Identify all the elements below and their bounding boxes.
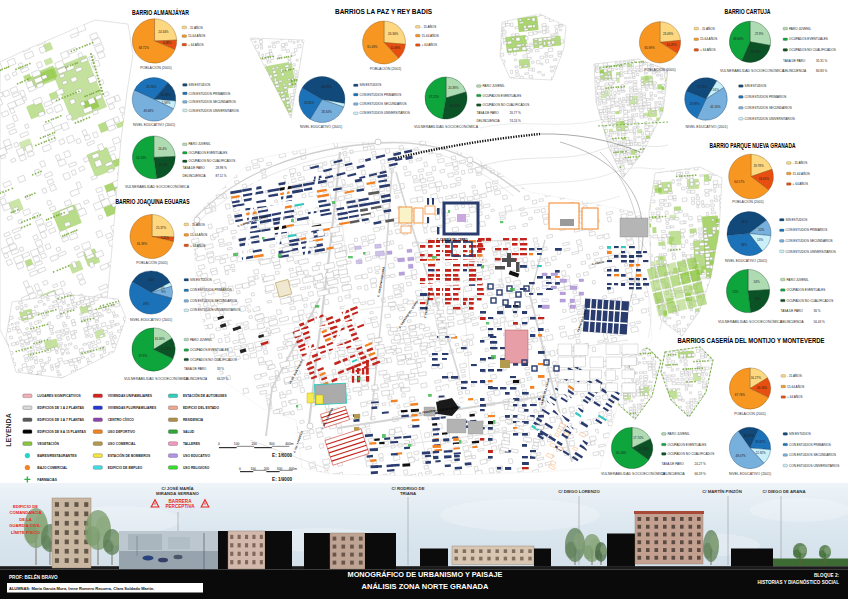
svg-text:CON ESTUDIOS SECUNDARIOS: CON ESTUDIOS SECUNDARIOS — [745, 106, 792, 110]
svg-text:16.67%: 16.67% — [744, 434, 755, 438]
svg-text:66.59 %: 66.59 % — [695, 472, 707, 476]
svg-text:20.39%: 20.39% — [448, 86, 459, 90]
svg-text:PARO JUVENIL: PARO JUVENIL — [789, 27, 811, 31]
svg-text:34%: 34% — [741, 243, 747, 247]
svg-text:- 15 AÑOS: - 15 AÑOS — [793, 160, 808, 165]
svg-text:68.72%: 68.72% — [139, 46, 150, 50]
svg-text:0: 0 — [239, 467, 241, 471]
svg-text:CON ESTUDIOS UNIVERSITARIOS: CON ESTUDIOS UNIVERSITARIOS — [789, 464, 839, 468]
svg-text:SIN ESTUDIOS: SIN ESTUDIOS — [745, 84, 767, 88]
svg-text:TASA DE PARO: TASA DE PARO — [184, 367, 207, 371]
svg-text:CON ESTUDIOS PRIMARIOS: CON ESTUDIOS PRIMARIOS — [360, 93, 402, 97]
svg-text:13.45%: 13.45% — [759, 177, 770, 181]
svg-text:15-64 AÑOS: 15-64 AÑOS — [793, 171, 810, 176]
svg-text:35.31 %: 35.31 % — [816, 59, 828, 63]
svg-text:TASA DE PARO: TASA DE PARO — [477, 111, 500, 115]
svg-text:FARMACIAS: FARMACIAS — [37, 478, 57, 482]
svg-text:11.69%: 11.69% — [390, 46, 400, 50]
svg-text:NIVEL EDUCATIVO (2001): NIVEL EDUCATIVO (2001) — [729, 472, 771, 476]
svg-text:USO DEPORTIVO: USO DEPORTIVO — [108, 430, 136, 434]
svg-text:TASA DE PARO: TASA DE PARO — [783, 59, 806, 63]
svg-text:26.36%: 26.36% — [388, 32, 399, 36]
svg-text:VULNERABILIDAD SOCIOECONÓMICA: VULNERABILIDAD SOCIOECONÓMICA — [124, 376, 189, 381]
svg-text:49.68%: 49.68% — [144, 109, 155, 113]
svg-text:ESTACIÓN DE AUTOBUSES: ESTACIÓN DE AUTOBUSES — [183, 393, 228, 398]
svg-text:RESIDENCIA: RESIDENCIA — [183, 418, 204, 422]
svg-text:49%: 49% — [143, 302, 149, 306]
svg-text:28.34%: 28.34% — [321, 110, 332, 114]
svg-text:66.59 %: 66.59 % — [217, 377, 229, 381]
svg-text:VIVIENDAS PLURIFAMILIARES: VIVIENDAS PLURIFAMILIARES — [108, 406, 157, 410]
svg-text:34%: 34% — [148, 278, 154, 282]
svg-text:CON ESTUDIOS SECUNDARIOS: CON ESTUDIOS SECUNDARIOS — [360, 102, 407, 106]
svg-text:61.49%: 61.49% — [367, 45, 378, 49]
svg-text:BARRERA: BARRERA — [169, 499, 193, 504]
svg-text:+ 64 AÑOS: + 64 AÑOS — [787, 394, 803, 399]
svg-text:GUARDIA CIVIL:: GUARDIA CIVIL: — [9, 523, 42, 528]
svg-text:CON ESTUDIOS SECUNDARIOS: CON ESTUDIOS SECUNDARIOS — [190, 299, 237, 303]
svg-text:OCUPADOS NO CUALIFICADOS: OCUPADOS NO CUALIFICADOS — [189, 159, 236, 163]
svg-text:E: 1/6000: E: 1/6000 — [272, 453, 292, 458]
svg-text:CON ESTUDIOS SECUNDARIOS: CON ESTUDIOS SECUNDARIOS — [789, 453, 836, 457]
svg-text:OCUPADOS NO CUALIFICADOS: OCUPADOS NO CUALIFICADOS — [190, 358, 237, 362]
svg-text:PERCEPTIVA: PERCEPTIVA — [165, 504, 195, 509]
svg-text:49.07%: 49.07% — [736, 454, 747, 458]
svg-text:BARRIO PARQUE NUEVA GRANADA: BARRIO PARQUE NUEVA GRANADA — [710, 142, 796, 150]
svg-text:MIRANDA SERRANO: MIRANDA SERRANO — [156, 491, 199, 496]
svg-text:52.13%: 52.13% — [136, 156, 147, 160]
svg-text:LUGARES SIGNIFICATIVOS: LUGARES SIGNIFICATIVOS — [37, 394, 81, 398]
svg-text:BARRIOS CASERÍA DEL MONTIJO: BARRIOS CASERÍA DEL MONTIJO Y MONTEVERDE — [678, 336, 825, 344]
svg-text:67.76%: 67.76% — [735, 393, 746, 397]
svg-text:+ 64 AÑOS: + 64 AÑOS — [188, 42, 204, 47]
svg-text:USO COMERCIAL: USO COMERCIAL — [108, 442, 136, 446]
svg-text:27.72%: 27.72% — [697, 85, 708, 89]
svg-text:NIVEL EDUCATIVO (2001): NIVEL EDUCATIVO (2001) — [130, 318, 172, 322]
svg-text:- 15 AÑOS: - 15 AÑOS — [700, 26, 715, 31]
svg-text:15-64 AÑOS: 15-64 AÑOS — [190, 232, 207, 237]
svg-text:CON ESTUDIOS UNIVERSITARIOS: CON ESTUDIOS UNIVERSITARIOS — [190, 308, 240, 312]
svg-text:PARO JUVENIL: PARO JUVENIL — [483, 84, 505, 88]
svg-text:SIN ESTUDIOS: SIN ESTUDIOS — [190, 278, 212, 282]
svg-text:28.74%: 28.74% — [751, 50, 762, 54]
svg-text:36 %: 36 % — [814, 309, 821, 313]
svg-text:TASA DE PARO: TASA DE PARO — [183, 166, 206, 170]
svg-text:USO EDUCATIVO: USO EDUCATIVO — [183, 454, 211, 458]
svg-text:EDIFICIOS DE 3 A 7 PLANTAS: EDIFICIOS DE 3 A 7 PLANTAS — [37, 418, 85, 422]
svg-text:POBLACIÓN (2001): POBLACIÓN (2001) — [370, 66, 402, 71]
svg-text:64.57%: 64.57% — [734, 180, 745, 184]
svg-text:27.8%: 27.8% — [755, 32, 764, 36]
svg-text:NIVEL EDUCATIVO (2001): NIVEL EDUCATIVO (2001) — [300, 125, 342, 129]
svg-text:19.78%: 19.78% — [753, 164, 764, 168]
svg-text:25.37%: 25.37% — [156, 226, 167, 230]
svg-text:DELINCUENCIA: DELINCUENCIA — [662, 472, 686, 476]
svg-text:300: 300 — [269, 442, 275, 446]
svg-text:EDIFICIOS DE 1 A 2 PLANTAS: EDIFICIOS DE 1 A 2 PLANTAS — [37, 406, 85, 410]
svg-text:CON ESTUDIOS PRIMARIOS: CON ESTUDIOS PRIMARIOS — [789, 443, 831, 447]
svg-text:POBLACIÓN (2001): POBLACIÓN (2001) — [136, 260, 168, 265]
svg-text:24.65%: 24.65% — [304, 101, 315, 105]
svg-text:43.94%: 43.94% — [733, 37, 744, 41]
svg-text:24.27 %: 24.27 % — [695, 462, 707, 466]
svg-text:44.39%: 44.39% — [321, 85, 332, 89]
svg-text:BLOQUE 2:: BLOQUE 2: — [814, 573, 839, 578]
svg-text:52%: 52% — [732, 290, 738, 294]
svg-text:DE LA: DE LA — [19, 517, 32, 522]
svg-text:PARO JUVENIL: PARO JUVENIL — [787, 278, 809, 282]
svg-text:24.4%: 24.4% — [158, 147, 167, 151]
svg-text:VIVIENDAS UNIFAMILIARES: VIVIENDAS UNIFAMILIARES — [108, 394, 153, 398]
svg-text:65.99%: 65.99% — [644, 46, 655, 50]
svg-text:65.16%: 65.16% — [616, 451, 627, 455]
svg-text:SIN ESTUDIOS: SIN ESTUDIOS — [189, 83, 211, 87]
svg-text:E: 1/9000: E: 1/9000 — [272, 477, 292, 482]
svg-text:TALLERES: TALLERES — [183, 442, 201, 446]
svg-text:SIN ESTUDIOS: SIN ESTUDIOS — [786, 218, 808, 222]
svg-text:56.43 %: 56.43 % — [814, 320, 826, 324]
svg-text:SALUD: SALUD — [183, 430, 195, 434]
svg-text:- 15 AÑOS: - 15 AÑOS — [188, 25, 203, 30]
svg-text:74.24 %: 74.24 % — [510, 119, 522, 123]
svg-text:32.02%: 32.02% — [450, 104, 461, 108]
svg-text:11.92%: 11.92% — [756, 451, 766, 455]
svg-text:CON ESTUDIOS SECUNDARIOS: CON ESTUDIOS SECUNDARIOS — [189, 100, 236, 104]
svg-text:9%: 9% — [161, 290, 166, 294]
svg-text:POBLACIÓN (2001): POBLACIÓN (2001) — [140, 65, 172, 70]
svg-text:HISTORIAS Y DIAGNÓSTICO SOCIAL: HISTORIAS Y DIAGNÓSTICO SOCIAL — [758, 578, 840, 585]
svg-text:VULNERABILIDAD SOCIOECONÓMICA: VULNERABILIDAD SOCIOECONÓMICA — [720, 68, 785, 73]
svg-text:MONOGRÁFICO DE URBANISMO Y PAI: MONOGRÁFICO DE URBANISMO Y PAISAJE — [348, 570, 503, 579]
svg-text:VEGETACIÓN: VEGETACIÓN — [37, 441, 59, 446]
svg-text:400m: 400m — [285, 442, 294, 446]
svg-text:OCUPADOS EVENTUALES: OCUPADOS EVENTUALES — [668, 443, 707, 447]
svg-text:87.11 %: 87.11 % — [216, 174, 227, 178]
svg-text:OCUPADOS NO CUALIFICADOS: OCUPADOS NO CUALIFICADOS — [787, 299, 834, 303]
svg-text:EDIFICIO DE EMPLEO: EDIFICIO DE EMPLEO — [108, 466, 143, 470]
svg-text:CON ESTUDIOS PRIMARIOS: CON ESTUDIOS PRIMARIOS — [190, 288, 232, 292]
svg-text:- 15 AÑOS: - 15 AÑOS — [190, 222, 205, 227]
svg-text:POBLACIÓN (2001): POBLACIÓN (2001) — [732, 199, 764, 204]
svg-text:CENTRO CÍVICO: CENTRO CÍVICO — [108, 417, 135, 422]
svg-text:PARO JUVENIL: PARO JUVENIL — [190, 338, 212, 342]
svg-text:23.49%: 23.49% — [663, 32, 674, 36]
svg-text:+ 64 AÑOS: + 64 AÑOS — [700, 47, 716, 52]
svg-text:+ 64 AÑOS: + 64 AÑOS — [190, 243, 206, 248]
svg-text:NIVEL EDUCATIVO (2001): NIVEL EDUCATIVO (2001) — [133, 123, 175, 127]
svg-text:BARRIO JOAQUINA EGUARAS: BARRIO JOAQUINA EGUARAS — [116, 198, 190, 206]
svg-text:41.16%: 41.16% — [710, 105, 721, 109]
svg-text:24%: 24% — [754, 280, 760, 284]
svg-text:OCUPADOS EVENTUALES: OCUPADOS EVENTUALES — [189, 151, 228, 155]
svg-text:15-64 AÑOS: 15-64 AÑOS — [787, 384, 804, 389]
svg-text:0: 0 — [218, 442, 220, 446]
svg-text:CON ESTUDIOS PRIMARIOS: CON ESTUDIOS PRIMARIOS — [786, 228, 828, 232]
svg-text:24.34%: 24.34% — [158, 30, 169, 34]
svg-text:OCUPADOS EVENTUALES: OCUPADOS EVENTUALES — [483, 94, 522, 98]
svg-text:BARRIOS LA PAZ Y REY: BARRIOS LA PAZ Y REY BADIS — [335, 8, 432, 15]
svg-text:VULNERABILIDAD SOCIOECONÓMICA: VULNERABILIDAD SOCIOECONÓMICA — [414, 124, 479, 129]
svg-text:17.74%: 17.74% — [633, 436, 644, 440]
svg-text:24%: 24% — [755, 297, 761, 301]
svg-text:OCUPADOS NO CUALIFICADOS: OCUPADOS NO CUALIFICADOS — [483, 103, 530, 107]
svg-text:15-64 AÑOS: 15-64 AÑOS — [422, 33, 439, 38]
svg-text:ESTACIÓN DE BOMBEROS: ESTACIÓN DE BOMBEROS — [108, 453, 151, 458]
svg-text:VULNERABILIDAD SOCIOECONÓMICA: VULNERABILIDAD SOCIOECONÓMICA — [601, 471, 666, 476]
svg-text:13%: 13% — [757, 238, 763, 242]
svg-text:C/ JOSÉ MARÍA: C/ JOSÉ MARÍA — [161, 486, 193, 491]
svg-text:POBLACIÓN (2001): POBLACIÓN (2001) — [734, 411, 766, 416]
svg-text:BARRIO CARTUJA: BARRIO CARTUJA — [725, 8, 771, 15]
svg-text:POBLACIÓN (2001): POBLACIÓN (2001) — [644, 67, 676, 72]
svg-text:23.4%: 23.4% — [159, 163, 168, 167]
svg-text:BARES/RESTAURANTES: BARES/RESTAURANTES — [37, 454, 77, 458]
svg-text:PROF: BELÉN BRAVO: PROF: BELÉN BRAVO — [9, 573, 58, 580]
svg-text:29.26%: 29.26% — [146, 85, 157, 89]
svg-text:CON ESTUDIOS PRIMARIOS: CON ESTUDIOS PRIMARIOS — [189, 92, 231, 96]
svg-text:47.21%: 47.21% — [429, 95, 440, 99]
svg-text:41%: 41% — [741, 220, 747, 224]
svg-text:100: 100 — [234, 442, 240, 446]
svg-text:OCUPADOS EVENTUALES: OCUPADOS EVENTUALES — [789, 37, 828, 41]
svg-text:CON ESTUDIOS UNIVERSITARIOS: CON ESTUDIOS UNIVERSITARIOS — [189, 109, 239, 113]
svg-text:TASA DE PARO: TASA DE PARO — [781, 309, 804, 313]
svg-text:OCUPADOS NO CUALIFICADOS: OCUPADOS NO CUALIFICADOS — [668, 452, 715, 456]
svg-text:CON ESTUDIOS UNIVERSITARIOS: CON ESTUDIOS UNIVERSITARIOS — [745, 117, 795, 121]
svg-text:EDIFICIOS DE 8 A 15 PLANTAS: EDIFICIOS DE 8 A 15 PLANTAS — [37, 430, 86, 434]
svg-text:EDIFICIO DEL ESTADO: EDIFICIO DEL ESTADO — [183, 406, 220, 410]
svg-text:C/ MARTÍN PINZÓN: C/ MARTÍN PINZÓN — [702, 489, 742, 494]
svg-text:33 %: 33 % — [217, 367, 224, 371]
svg-text:VULNERABILIDAD SOCIOECONÓMICA: VULNERABILIDAD SOCIOECONÓMICA — [718, 319, 783, 324]
svg-text:15.08%: 15.08% — [161, 93, 172, 97]
svg-text:OCUPADOS NO CUALIFICADOS: OCUPADOS NO CUALIFICADOS — [789, 48, 836, 52]
svg-text:TASA DE PARO: TASA DE PARO — [662, 462, 685, 466]
svg-text:VULNERABILIDAD SOCIOECONÓMICA: VULNERABILIDAD SOCIOECONÓMICA — [125, 184, 190, 189]
svg-text:19.32%: 19.32% — [755, 440, 766, 444]
svg-text:NIVEL EDUCATIVO (2001): NIVEL EDUCATIVO (2001) — [725, 259, 767, 263]
svg-text:15.72%: 15.72% — [161, 347, 172, 351]
svg-text:200: 200 — [251, 442, 257, 446]
svg-text:OCUPADOS EVENTUALES: OCUPADOS EVENTUALES — [787, 288, 826, 292]
svg-text:CON ESTUDIOS SECUNDARIOS: CON ESTUDIOS SECUNDARIOS — [786, 239, 833, 243]
svg-text:NIVEL EDUCATIVO (2001): NIVEL EDUCATIVO (2001) — [685, 125, 727, 129]
svg-text:23.98%: 23.98% — [689, 102, 700, 106]
svg-text:+ 64 AÑOS: + 64 AÑOS — [422, 42, 438, 47]
svg-text:COMANDANCIA: COMANDANCIA — [9, 510, 41, 515]
svg-text:LEYENDA: LEYENDA — [5, 413, 12, 446]
svg-text:16.16%: 16.16% — [757, 386, 768, 390]
svg-text:CON ESTUDIOS UNIVERSITARIOS: CON ESTUDIOS UNIVERSITARIOS — [786, 250, 836, 254]
svg-text:C/ RODRIGO DE: C/ RODRIGO DE — [391, 486, 424, 491]
svg-text:12%: 12% — [758, 228, 764, 232]
svg-text:BARRIO ALMANJÁYAR: BARRIO ALMANJÁYAR — [132, 8, 189, 16]
svg-text:26.77 %: 26.77 % — [510, 111, 522, 115]
svg-text:28.98 %: 28.98 % — [216, 166, 228, 170]
svg-text:+ 64 AÑOS: + 64 AÑOS — [793, 181, 809, 186]
svg-text:OCUPADOS EVENTUALES: OCUPADOS EVENTUALES — [190, 348, 229, 352]
svg-text:DELINCUENCIA: DELINCUENCIA — [781, 320, 805, 324]
svg-text:C/ DIEGO LORENZO: C/ DIEGO LORENZO — [558, 489, 600, 494]
svg-text:15-64 AÑOS: 15-64 AÑOS — [188, 33, 205, 38]
svg-text:C/ DIEGO DE ARANA: C/ DIEGO DE ARANA — [762, 489, 805, 494]
svg-text:EDIFICIO DE: EDIFICIO DE — [13, 504, 38, 509]
svg-text:BAJO COMERCIAL: BAJO COMERCIAL — [37, 466, 67, 470]
svg-text:67.9%: 67.9% — [139, 354, 148, 358]
svg-text:16.27%: 16.27% — [751, 376, 762, 380]
svg-text:15-64 AÑOS: 15-64 AÑOS — [700, 36, 717, 41]
svg-text:ANÁLISIS ZONA NORTE GRANADA: ANÁLISIS ZONA NORTE GRANADA — [362, 582, 489, 591]
svg-text:16.36%: 16.36% — [155, 337, 166, 341]
svg-text:84.83 %: 84.83 % — [816, 69, 828, 73]
svg-text:61.38%: 61.38% — [137, 242, 148, 246]
svg-text:10.25%: 10.25% — [667, 43, 678, 47]
svg-text:DELINCUENCIA: DELINCUENCIA — [783, 69, 807, 73]
svg-text:- 15 AÑOS: - 15 AÑOS — [422, 24, 437, 29]
svg-text:PARO JUVENIL: PARO JUVENIL — [189, 142, 211, 146]
svg-text:- 15 AÑOS: - 15 AÑOS — [787, 373, 802, 378]
svg-text:LÍMITE FÍSICO: LÍMITE FÍSICO — [11, 530, 41, 535]
svg-text:ALUMNAS: María García Mora, Ir: ALUMNAS: María García Mora, Irene Romero… — [9, 586, 154, 591]
svg-text:TRIANA: TRIANA — [400, 491, 416, 496]
svg-text:6.98%: 6.98% — [163, 41, 172, 45]
svg-text:SIN ESTUDIOS: SIN ESTUDIOS — [789, 432, 811, 436]
svg-text:CON ESTUDIOS UNIVERSITARIOS: CON ESTUDIOS UNIVERSITARIOS — [360, 111, 410, 115]
svg-text:CON ESTUDIOS PRIMARIOS: CON ESTUDIOS PRIMARIOS — [745, 95, 787, 99]
svg-text:USO RELIGIOSO: USO RELIGIOSO — [183, 466, 210, 470]
svg-text:SIN ESTUDIOS: SIN ESTUDIOS — [360, 83, 382, 87]
svg-text:DELINCUENCIA: DELINCUENCIA — [183, 174, 207, 178]
svg-text:PARO JUVENIL: PARO JUVENIL — [668, 432, 690, 436]
svg-text:17.26%: 17.26% — [639, 447, 650, 451]
svg-text:DELINCUENCIA: DELINCUENCIA — [477, 119, 501, 123]
